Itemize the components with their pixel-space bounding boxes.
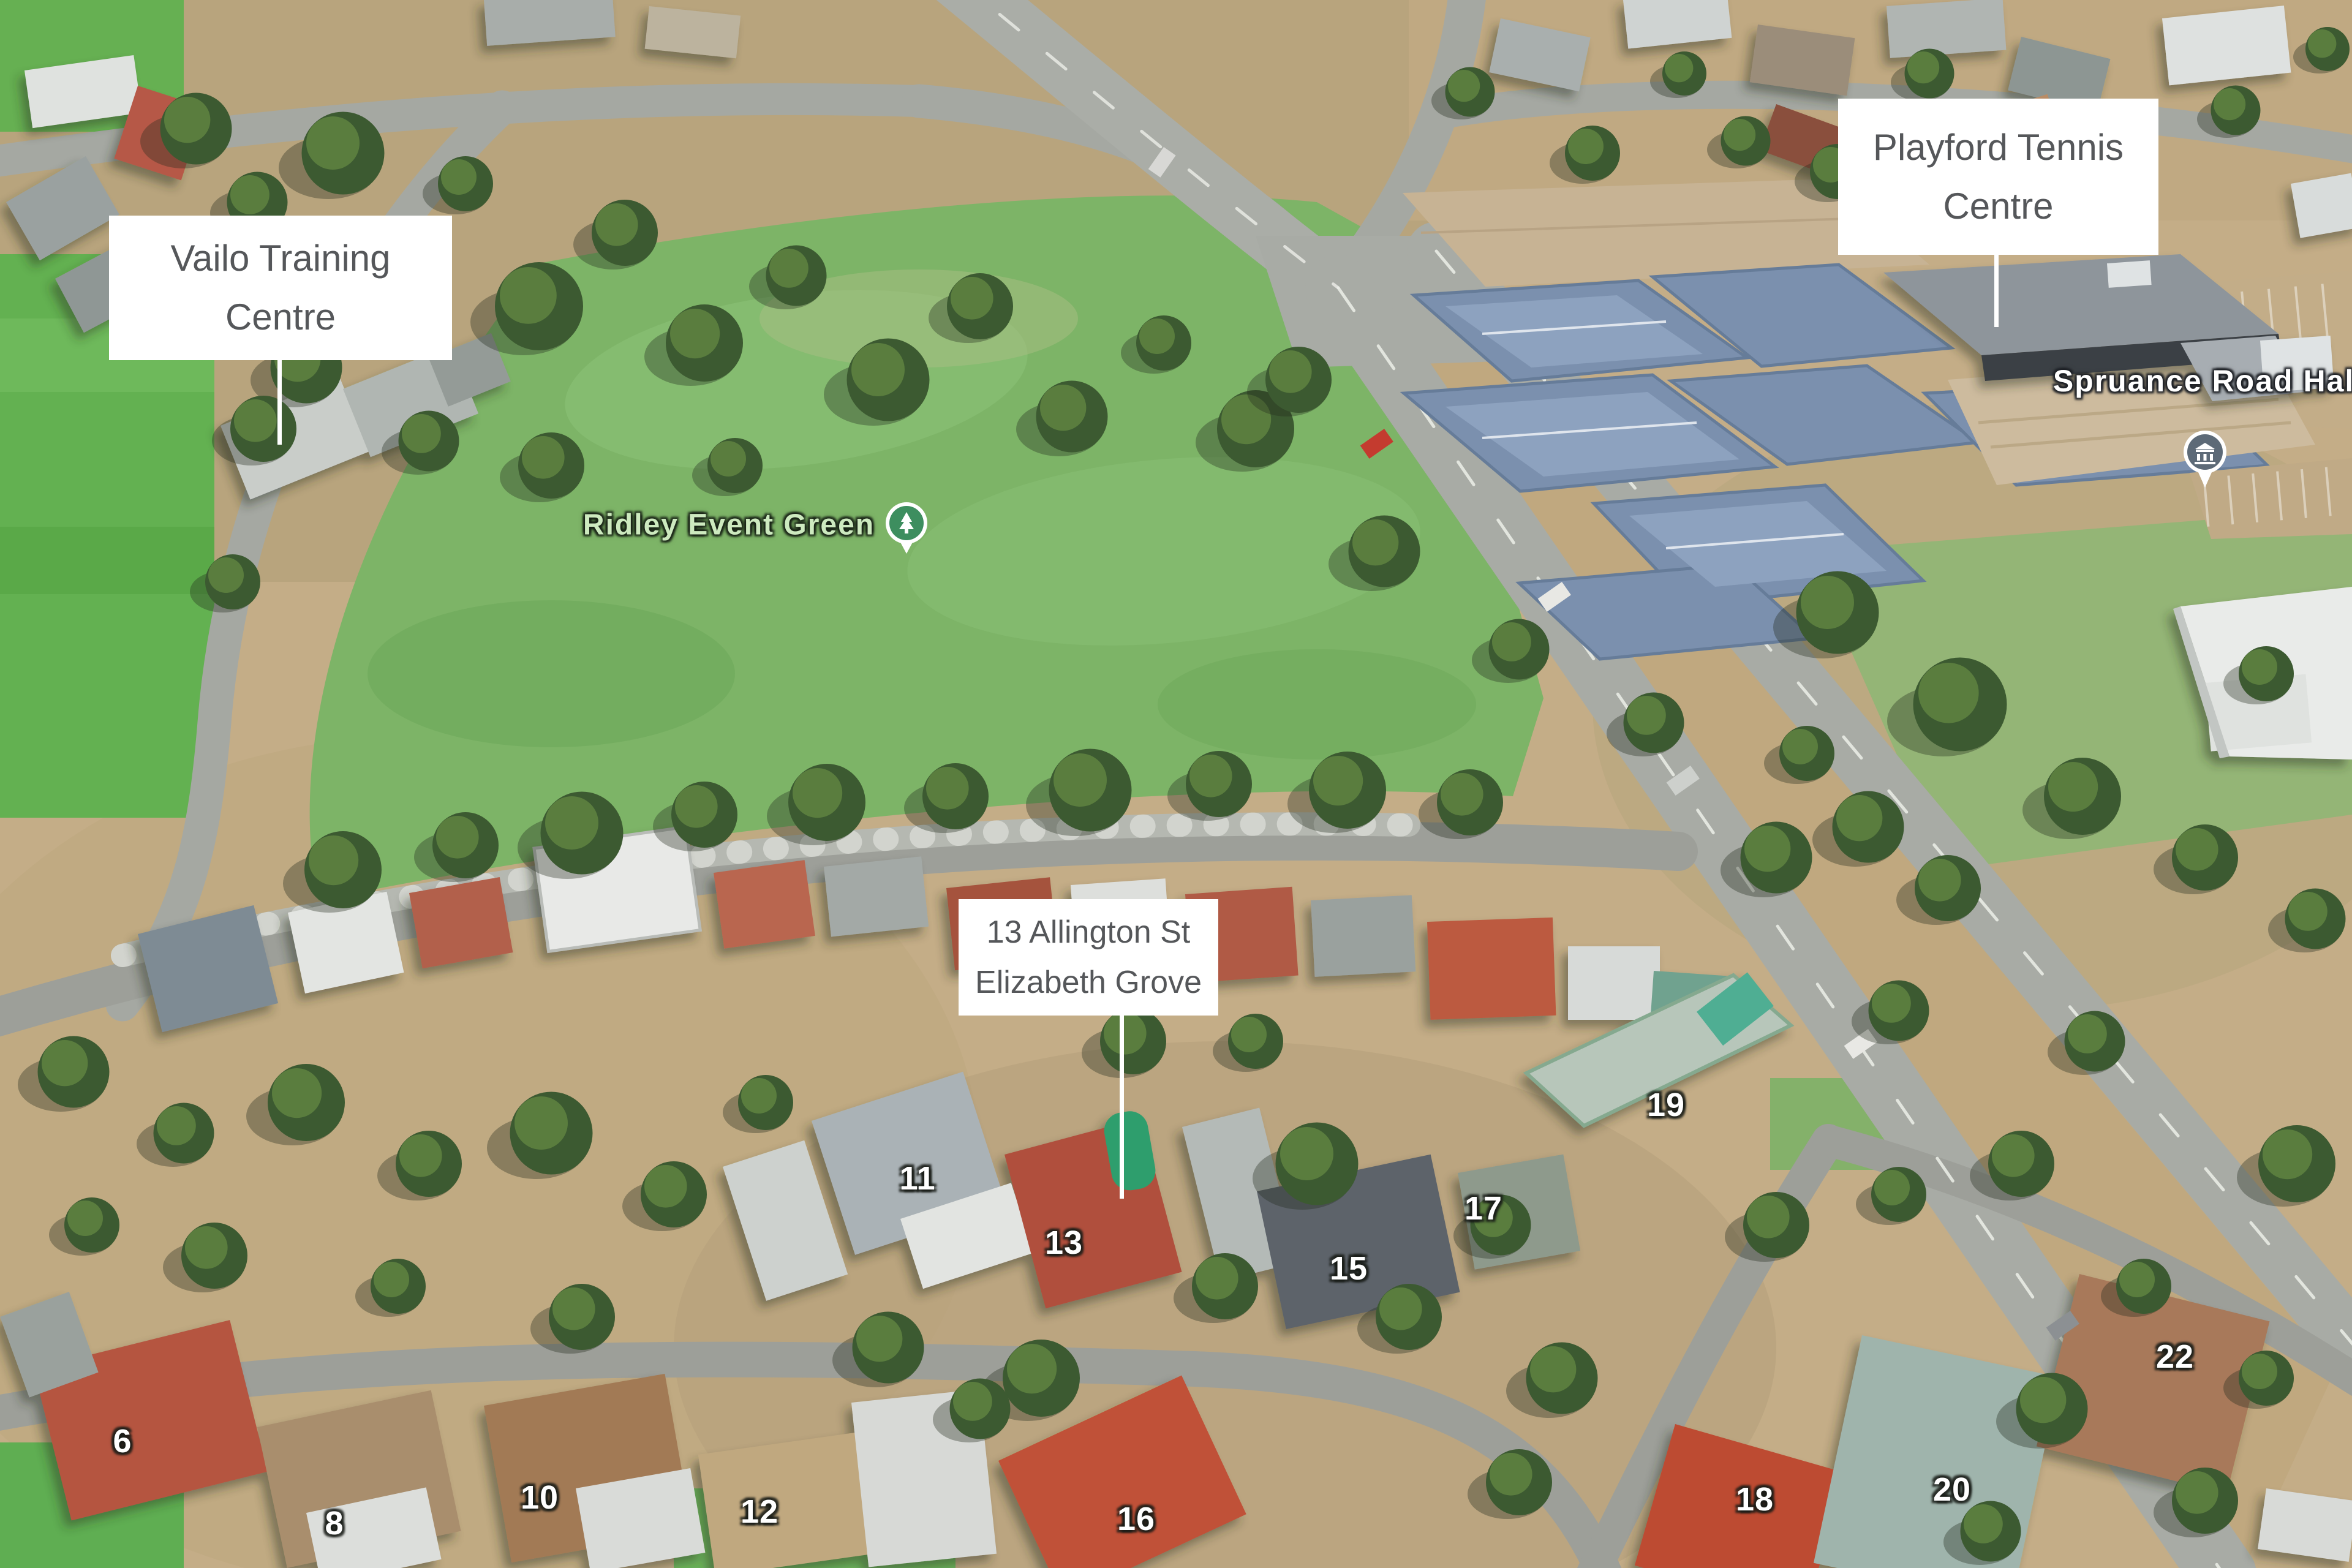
poi-label-spruance-road-hall[interactable]: Spruance Road Hall — [2053, 363, 2352, 399]
house-number: 22 — [2156, 1338, 2194, 1376]
callout-text-line: Elizabeth Grove — [975, 957, 1202, 1008]
house-number: 12 — [741, 1493, 778, 1531]
house-number: 17 — [1464, 1189, 1502, 1227]
house-number: 18 — [1736, 1480, 1774, 1518]
aerial-map-canvas[interactable]: Ridley Event Green Spruance Road Hall Va… — [0, 0, 2352, 1568]
house-number: 10 — [521, 1479, 559, 1517]
park-pin-icon[interactable] — [884, 501, 929, 555]
address-leader-line — [1120, 1014, 1124, 1199]
house-number: 16 — [1117, 1500, 1155, 1538]
poi-label-ridley-event-green[interactable]: Ridley Event Green — [583, 508, 875, 542]
callout-playford-tennis-centre: Playford Tennis Centre — [1838, 99, 2158, 255]
vailo-leader-line — [277, 359, 282, 445]
callout-text-line: Vailo Training — [170, 229, 390, 288]
callout-vailo-training-centre: Vailo Training Centre — [109, 216, 452, 360]
house-number: 6 — [113, 1422, 132, 1460]
house-number: 11 — [899, 1159, 935, 1197]
house-number: 19 — [1647, 1086, 1685, 1124]
callout-text-line: Playford Tennis — [1873, 118, 2124, 177]
hall-pin-icon[interactable] — [2182, 429, 2228, 489]
callout-text-line: 13 Allington St — [987, 907, 1190, 957]
playford-leader-line — [1994, 254, 1999, 327]
house-number: 13 — [1045, 1224, 1083, 1262]
callout-text-line: Centre — [225, 288, 336, 347]
house-number: 20 — [1933, 1471, 1971, 1509]
house-number: 8 — [325, 1504, 344, 1542]
callout-13-allington-st: 13 Allington St Elizabeth Grove — [959, 899, 1218, 1016]
callout-text-line: Centre — [1943, 177, 2053, 236]
house-number: 15 — [1330, 1249, 1368, 1287]
